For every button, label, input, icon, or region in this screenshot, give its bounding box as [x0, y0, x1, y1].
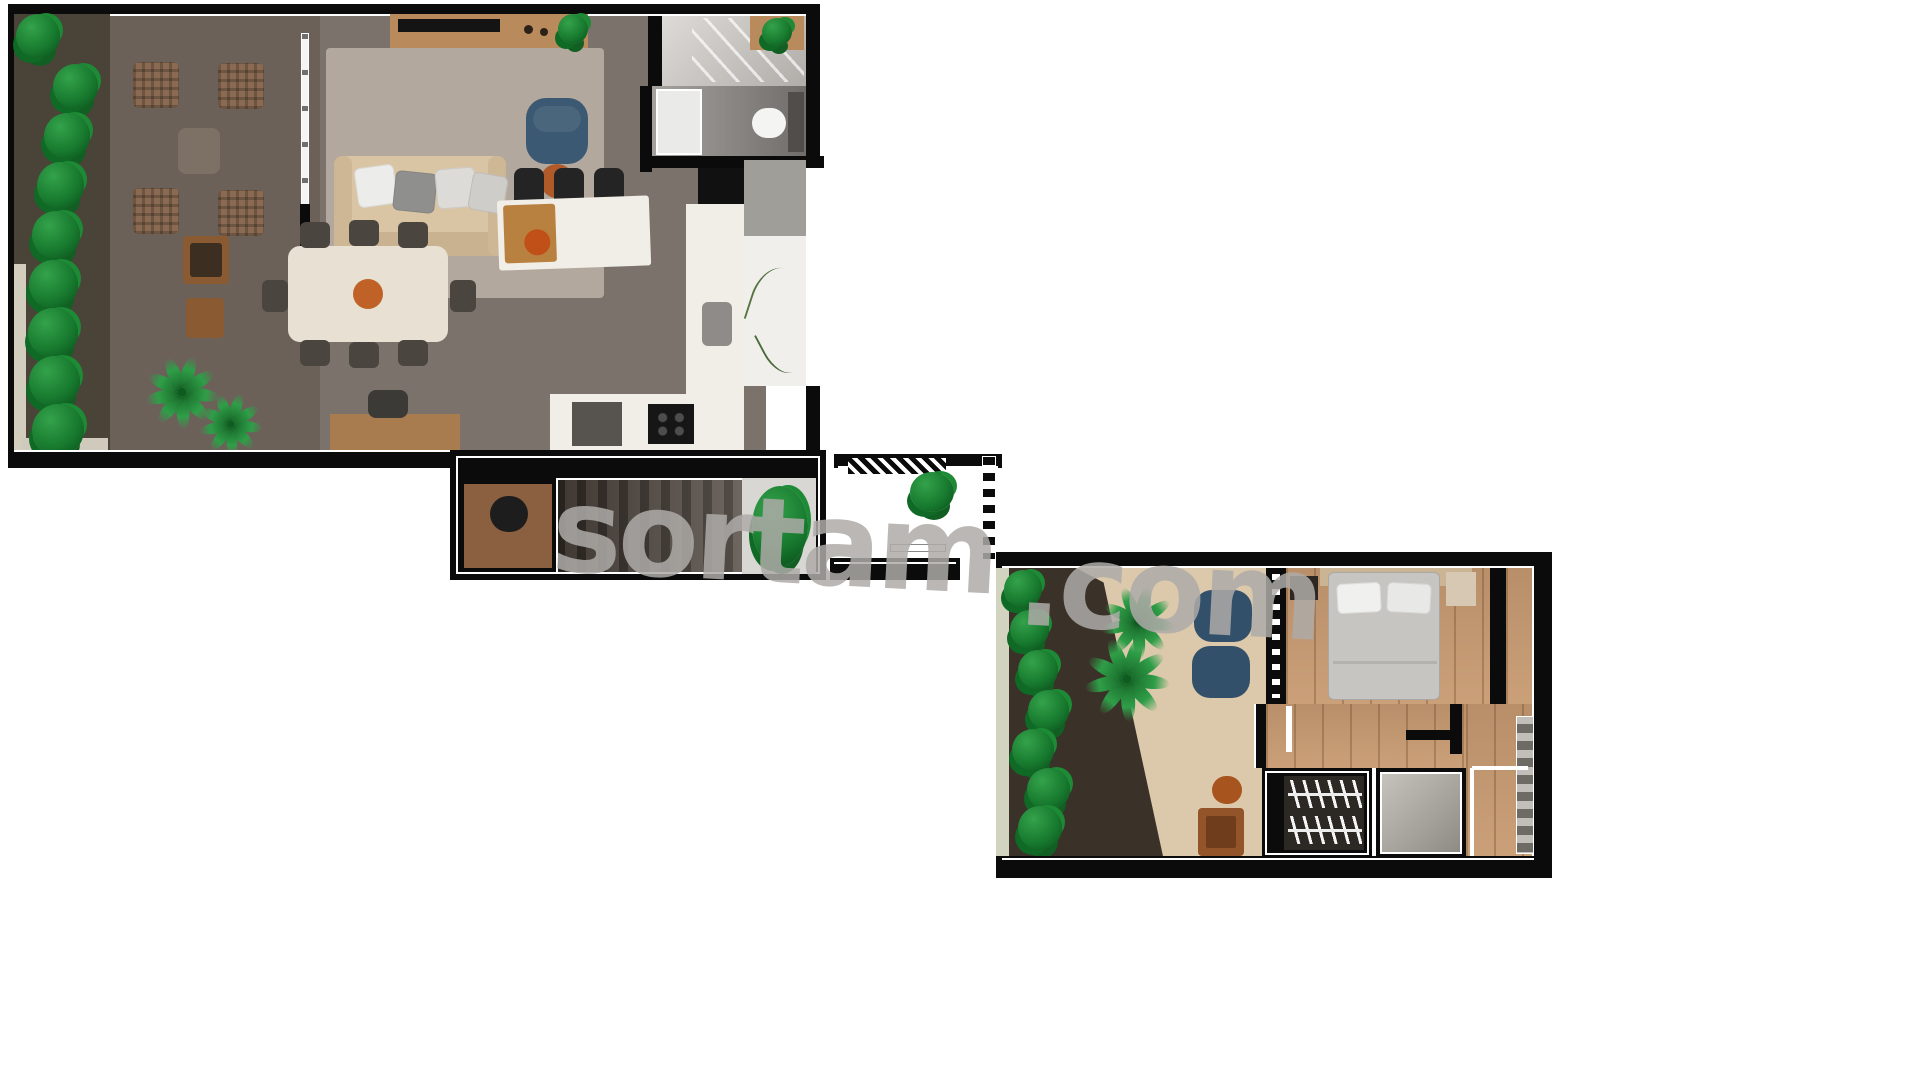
- desk-chair: [368, 390, 408, 418]
- console-plant: [558, 14, 588, 44]
- dining-chair: [262, 280, 288, 312]
- bottom-wall-keyline: [14, 450, 454, 452]
- dining-chair: [349, 342, 379, 368]
- courtyard: [744, 236, 806, 386]
- kitchen-island: [497, 195, 651, 270]
- right-wall-upper: [806, 4, 820, 168]
- palm-core-icon: [178, 388, 185, 396]
- bottom-keyline: [1002, 858, 1546, 860]
- tree-icon: [29, 356, 80, 407]
- bathroom-floor: [652, 86, 808, 158]
- hall-wall: [1450, 704, 1462, 754]
- tree-icon: [44, 113, 90, 159]
- dining-table: [288, 246, 448, 342]
- bath-counter: [788, 92, 804, 152]
- garden-trees: [16, 14, 108, 462]
- dining-chair: [300, 222, 330, 248]
- duvet-fold: [1333, 661, 1437, 664]
- deck-slab: [744, 160, 806, 236]
- dining-chair: [349, 220, 379, 246]
- palm-plant: [200, 392, 262, 456]
- pot: [490, 496, 528, 532]
- tree-icon: [1027, 768, 1070, 811]
- tree-icon: [29, 260, 78, 309]
- tree-icon: [16, 14, 60, 58]
- tree-icon: [1018, 650, 1058, 690]
- round-table: [1212, 776, 1242, 804]
- plant-shelf: [750, 16, 804, 50]
- hall-wall-stub: [1406, 730, 1450, 740]
- room-topright-floor: [1506, 568, 1532, 704]
- closet-rail: [1288, 780, 1362, 808]
- garden-strip: [14, 14, 110, 462]
- terrace-table: [178, 128, 220, 174]
- tv: [398, 19, 500, 32]
- wicker-pouf: [218, 63, 264, 109]
- dining-chair: [450, 280, 476, 312]
- branch: [744, 261, 801, 330]
- counter-right: [686, 204, 744, 396]
- entry-wall: [648, 16, 662, 86]
- centerpiece: [353, 279, 383, 309]
- wicker-pouf: [133, 188, 179, 234]
- table-inner: [1206, 816, 1236, 848]
- bench: [1446, 572, 1476, 606]
- base-cabinet: [572, 402, 622, 446]
- tree-icon: [1018, 806, 1062, 850]
- wood-table: [183, 236, 229, 284]
- tree-icon: [32, 404, 84, 456]
- table-top: [190, 243, 222, 277]
- door-line: [1286, 706, 1292, 752]
- watermark-text: .com: [1015, 524, 1324, 658]
- wall-keyline: [1254, 704, 1256, 768]
- wicker-pouf: [218, 190, 264, 236]
- counter-bottom: [550, 394, 744, 452]
- terrace-wall-lower: [1254, 704, 1266, 768]
- floor-plan-sheet: sortam .com: [0, 0, 1920, 1080]
- dining-chair: [398, 222, 428, 248]
- toilet: [752, 108, 786, 138]
- lounge-pouf: [526, 98, 588, 164]
- bedroom-wall-right: [1490, 568, 1506, 704]
- tree-icon: [28, 308, 78, 358]
- dining-chair: [300, 340, 330, 366]
- shelf-plant: [762, 18, 792, 46]
- bottom-wall: [8, 452, 458, 468]
- utility-inner: [1380, 772, 1462, 854]
- sink: [702, 302, 732, 346]
- dining-chair: [398, 340, 428, 366]
- square-table: [1198, 808, 1244, 856]
- wall-line-h: [1472, 766, 1528, 770]
- stairs-down: [1516, 716, 1534, 854]
- tree-icon: [37, 162, 84, 209]
- shower: [656, 89, 702, 155]
- wall-line-v: [1470, 768, 1474, 856]
- tree-icon: [1012, 729, 1054, 771]
- walkin-closet: [1262, 768, 1372, 858]
- pillow: [1386, 582, 1432, 614]
- desk: [330, 414, 460, 450]
- closet-rail: [1288, 816, 1362, 844]
- cooktop: [648, 404, 694, 444]
- stairs-cabinet: [464, 484, 552, 568]
- pouf-shade: [533, 106, 581, 132]
- decor-vase: [524, 25, 533, 34]
- branch: [754, 322, 804, 380]
- glass-wall: [302, 34, 308, 206]
- p2-right-wall: [1534, 552, 1552, 878]
- tree-icon: [53, 64, 98, 109]
- wicker-pouf: [133, 62, 179, 108]
- tree-icon: [32, 211, 80, 259]
- pillow: [392, 170, 438, 214]
- p2-bottom-wall: [996, 856, 1552, 878]
- tree-icon: [1028, 690, 1069, 731]
- wood-side-table: [186, 298, 224, 338]
- decor-vase: [540, 28, 548, 36]
- tv-console: [390, 14, 588, 48]
- pillow: [1336, 582, 1382, 614]
- utility-room: [1376, 768, 1466, 858]
- bed: [1328, 572, 1440, 700]
- watermark-text: sortam: [549, 470, 999, 611]
